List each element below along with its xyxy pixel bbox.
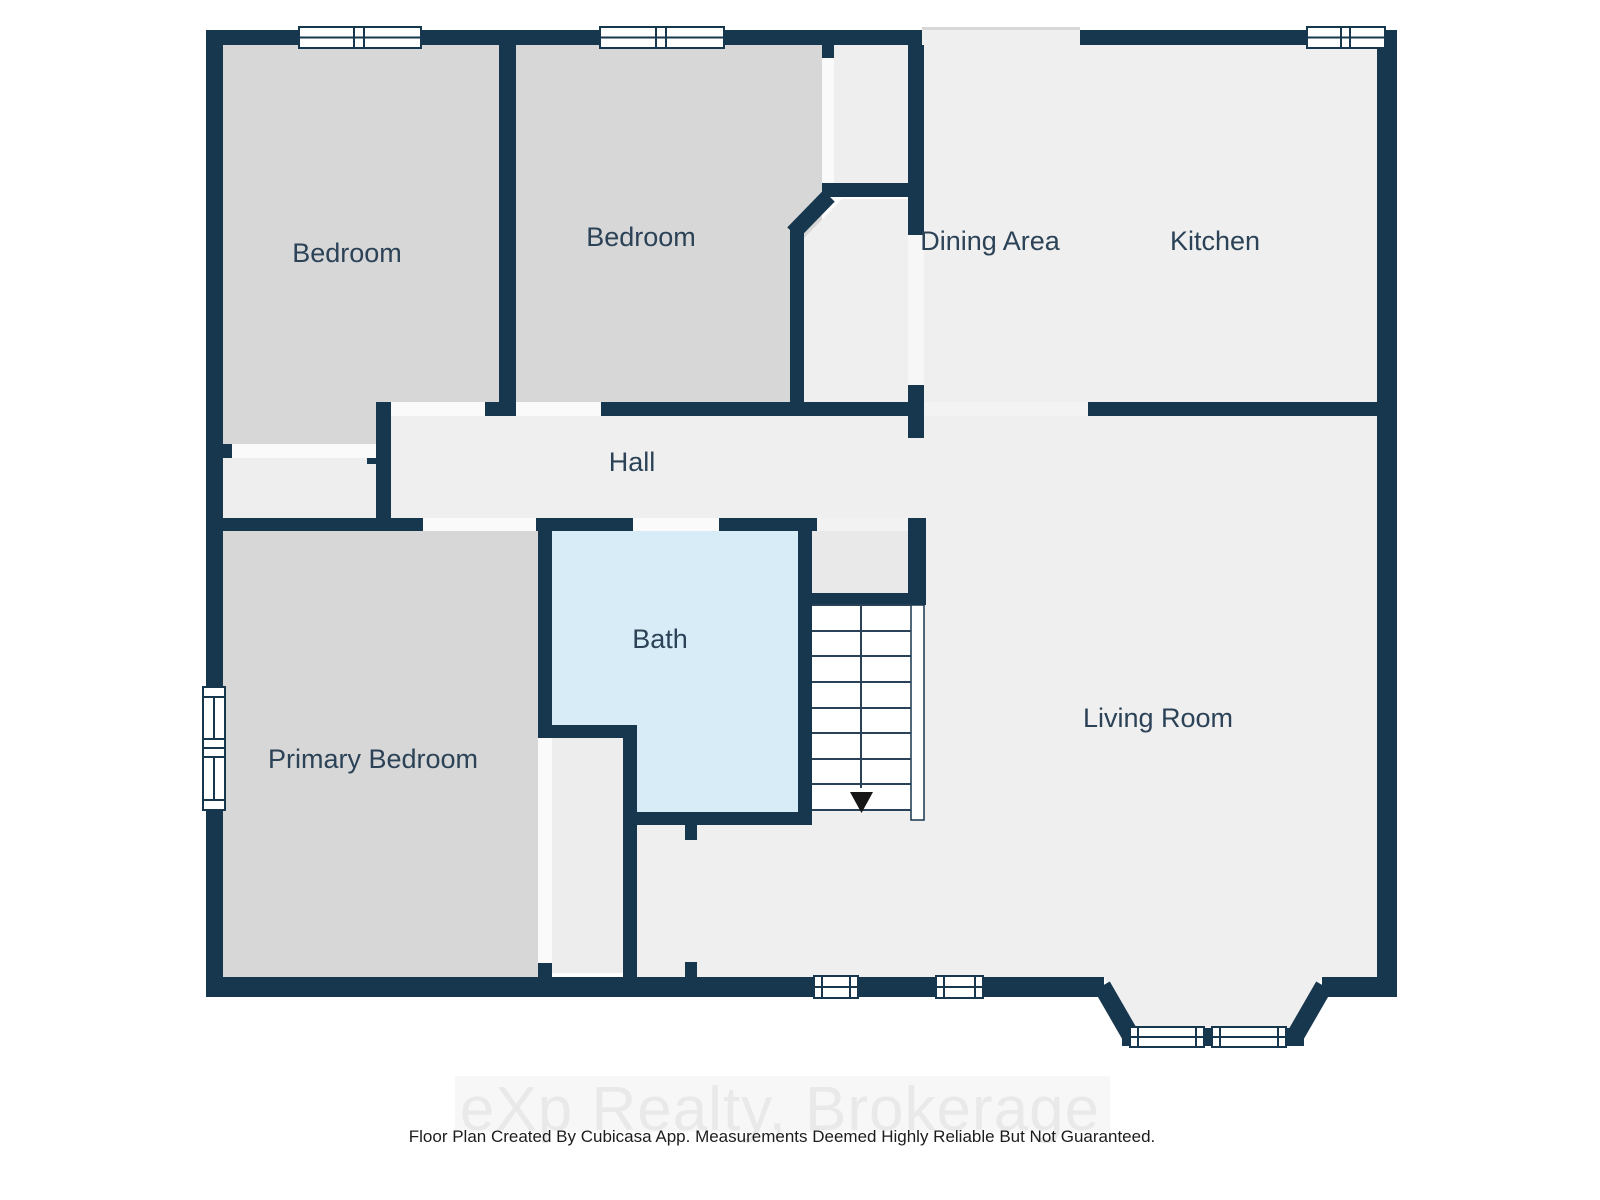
bath-right-wall	[798, 518, 812, 812]
entry-closet-left-wall	[790, 226, 804, 402]
dining-area-label: Dining Area	[920, 226, 1061, 256]
stairwell-right-wall	[908, 518, 926, 605]
living-room-label: Living Room	[1083, 703, 1233, 733]
hall-top-wall-stub	[485, 402, 516, 416]
opening-stub-top	[685, 825, 697, 840]
primary-closet-floor	[552, 738, 623, 973]
bedroom1-closet-opening	[232, 444, 376, 458]
bath-door-opening	[633, 518, 719, 531]
entry-closet-floor	[804, 199, 908, 402]
hall-top-wall	[601, 402, 908, 416]
primary-closet-opening	[538, 738, 552, 963]
kitchen-label: Kitchen	[1170, 226, 1260, 256]
branding-layer: eXp Realty, Brokerage Floor Plan Created…	[409, 1075, 1156, 1146]
opening-stub-bottom	[685, 962, 697, 977]
footer-disclaimer: Floor Plan Created By Cubicasa App. Meas…	[409, 1127, 1156, 1146]
bedroom2-door-opening	[516, 402, 601, 416]
dining-floor-notch	[922, 30, 1080, 416]
bedroom1-door-opening	[391, 402, 485, 416]
bath-step-wall	[538, 725, 637, 738]
window-icon-living-a	[814, 976, 858, 998]
stairs-railing	[911, 605, 924, 820]
dining-living-opening	[924, 402, 1088, 416]
floor-plan-canvas: Bedroom Bedroom Dining Area Kitchen Hall…	[0, 0, 1600, 1200]
hall-bottom-wall-b	[536, 518, 633, 531]
window-icon-bay-a	[1130, 1027, 1204, 1047]
bath-bottom-wall	[623, 812, 812, 825]
primary-closet-stub	[538, 963, 552, 977]
hall-bottom-wall-a	[206, 518, 423, 531]
hall-label: Hall	[609, 447, 656, 477]
stair-landing-floor	[812, 531, 908, 593]
entry-closet-opening	[908, 235, 924, 385]
bedroom-1-label: Bedroom	[292, 238, 402, 268]
bath-label: Bath	[632, 624, 688, 654]
bedroom1-closet-stub	[220, 444, 232, 458]
bedroom2-closet-opening	[822, 58, 834, 183]
bedroom-2-closet-floor	[834, 45, 908, 183]
bedroom-2-label: Bedroom	[586, 222, 696, 252]
window-icon-primary-bedroom	[203, 687, 225, 810]
dining-left-wall-stub	[908, 385, 924, 438]
primary-closet-right-wall	[623, 738, 637, 977]
primary-bedroom-door-opening	[423, 518, 536, 531]
window-icon-bay-b	[1212, 1027, 1286, 1047]
window-icon-living-b	[936, 976, 983, 998]
bay-window-floor	[1104, 977, 1322, 1030]
hall-floor	[391, 416, 924, 518]
stair-opening	[817, 518, 908, 531]
hall-left-wall	[376, 402, 391, 531]
bedroom2-closet-stub	[822, 45, 834, 58]
dining-notch-edge	[922, 27, 1080, 30]
window-icon-bedroom1	[299, 27, 421, 48]
bottom-wall-right	[1322, 977, 1397, 997]
window-icon-bedroom2	[600, 27, 724, 48]
kitchen-bottom-wall	[1088, 402, 1377, 416]
primary-bedroom-label: Primary Bedroom	[268, 744, 478, 774]
right-wall	[1377, 30, 1397, 997]
left-wall	[206, 30, 223, 997]
bath-left-wall	[538, 531, 552, 738]
landing-bottom-wall	[812, 593, 926, 605]
living-room-floor	[924, 416, 1377, 977]
window-icon-kitchen	[1307, 27, 1385, 48]
living-room-floor-lower-left	[637, 810, 924, 977]
staircase	[812, 605, 924, 820]
floor-plan-page: Bedroom Bedroom Dining Area Kitchen Hall…	[0, 0, 1600, 1200]
closet-mid-wall	[822, 183, 924, 197]
dining-left-wall	[908, 45, 924, 235]
bedroom-divider-wall	[499, 45, 516, 416]
